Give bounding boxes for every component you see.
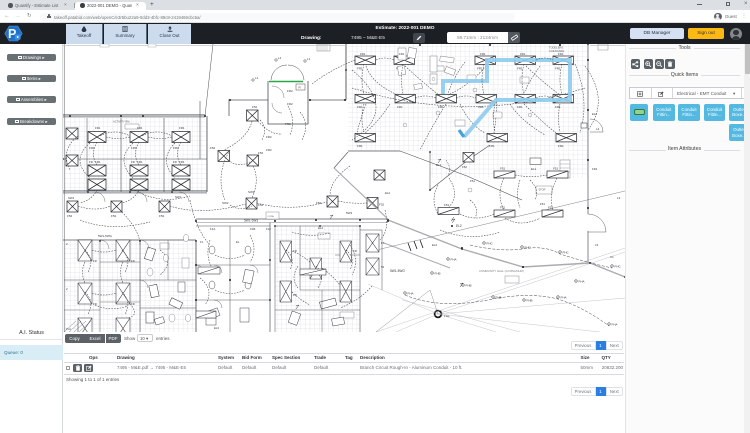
svg-text:FR1: FR1: [137, 160, 143, 164]
svg-text:F52: F52: [210, 146, 216, 150]
svg-text:F51: F51: [540, 202, 545, 206]
svg-text:5W1-5WG: 5W1-5WG: [390, 269, 405, 273]
svg-text:FR1: FR1: [489, 144, 495, 148]
svg-text:SW1: SW1: [175, 195, 182, 199]
svg-text:EL2: EL2: [592, 112, 597, 116]
svg-text:FR1: FR1: [357, 144, 363, 148]
svg-text:F51: F51: [500, 206, 506, 210]
svg-text:SW1: SW1: [68, 196, 75, 200]
svg-text:F51: F51: [500, 167, 506, 171]
svg-text:FR2: FR2: [287, 102, 293, 106]
svg-text:FR1: FR1: [173, 146, 179, 150]
svg-text:FR1: FR1: [558, 144, 564, 148]
svg-text:5W3: 5W3: [346, 211, 353, 215]
svg-text:F51: F51: [553, 167, 559, 171]
svg-text:FHA: FHA: [612, 323, 618, 327]
svg-text:EL2: EL2: [436, 163, 442, 167]
svg-text:L1: L1: [307, 57, 311, 61]
svg-text:C1: C1: [610, 255, 614, 259]
svg-text:FHC: FHC: [525, 246, 532, 250]
svg-text:FHA: FHA: [408, 292, 414, 296]
svg-text:EL1: EL1: [531, 167, 537, 171]
svg-text:5W1-5WG: 5W1-5WG: [98, 234, 113, 238]
svg-text:EL2: EL2: [432, 243, 438, 247]
svg-text:FR1: FR1: [399, 52, 405, 56]
svg-text:FR1: FR1: [558, 52, 564, 56]
svg-text:FR: FR: [131, 259, 135, 263]
svg-text:F52: F52: [258, 203, 264, 207]
svg-text:PLA: PLA: [66, 327, 71, 331]
svg-text:EL: EL: [236, 240, 240, 244]
svg-text:FR1: FR1: [478, 105, 484, 109]
svg-text:FR1: FR1: [137, 126, 143, 130]
svg-text:FR1: FR1: [517, 67, 523, 71]
svg-text:F5: F5: [381, 241, 385, 245]
svg-text:FR: FR: [131, 160, 135, 164]
svg-text:F52: F52: [462, 165, 467, 169]
svg-text:FR1: FR1: [89, 146, 95, 150]
svg-text:L3: L3: [617, 196, 621, 200]
svg-text:FR1: FR1: [480, 52, 486, 56]
svg-text:L4: L4: [596, 127, 600, 131]
svg-text:FHC: FHC: [615, 265, 622, 269]
svg-text:F51: F51: [470, 179, 475, 183]
svg-text:FHC: FHC: [487, 242, 494, 246]
svg-text:FHC: FHC: [563, 251, 570, 255]
svg-text:F52: F52: [252, 105, 258, 109]
svg-text:FR1: FR1: [179, 160, 185, 164]
svg-text:F52: F52: [67, 214, 73, 218]
svg-text:FR1: FR1: [131, 146, 137, 150]
svg-text:F52: F52: [379, 203, 385, 207]
svg-text:F1A: F1A: [210, 227, 215, 231]
svg-text:EL2: EL2: [385, 191, 391, 195]
svg-text:F52: F52: [258, 151, 264, 155]
svg-text:FR1: FR1: [179, 126, 185, 130]
svg-text:FR1: FR1: [95, 160, 101, 164]
svg-text:F52: F52: [316, 201, 322, 205]
svg-text:ACTIVITY RM: ACTIVITY RM: [113, 120, 129, 124]
svg-text:FR: FR: [93, 259, 97, 263]
svg-text:FR1: FR1: [360, 52, 366, 56]
svg-text:FR1: FR1: [555, 105, 561, 109]
svg-text:F1: F1: [200, 240, 204, 244]
svg-text:FHA: FHA: [579, 280, 585, 284]
svg-text:EL2: EL2: [456, 224, 462, 228]
svg-text:FR2: FR2: [266, 148, 272, 152]
svg-text:EL3: EL3: [214, 326, 219, 330]
svg-text:STOR: STOR: [539, 189, 546, 192]
svg-text:FHA: FHA: [561, 296, 567, 300]
svg-text:FR1: FR1: [95, 126, 101, 130]
svg-text:COMMUNITY HALL (GYMNASIUM): COMMUNITY HALL (GYMNASIUM): [479, 269, 524, 273]
svg-text:SW2: SW2: [222, 201, 229, 205]
svg-text:FR1: FR1: [592, 167, 598, 171]
svg-text:FHA: FHA: [451, 258, 457, 262]
svg-text:L1: L1: [255, 76, 259, 80]
svg-text:5W1-5W3: 5W1-5W3: [244, 219, 258, 223]
svg-text:F52: F52: [159, 214, 165, 218]
svg-text:FHB: FHB: [435, 272, 441, 276]
svg-text:FR2: FR2: [287, 89, 293, 93]
svg-text:FR1: FR1: [517, 105, 523, 109]
svg-text:FR1: FR1: [477, 67, 483, 71]
svg-text:COPA: COPA: [268, 215, 275, 218]
svg-text:FR1: FR1: [397, 105, 403, 109]
svg-text:FL2: FL2: [266, 227, 271, 231]
svg-text:F52: F52: [111, 214, 117, 218]
svg-text:FR: FR: [89, 160, 93, 164]
svg-text:53: 53: [381, 265, 385, 269]
svg-text:FR: FR: [173, 160, 177, 164]
svg-text:SW1: SW1: [248, 190, 255, 194]
svg-text:F51: F51: [444, 203, 450, 207]
svg-text:FR2: FR2: [285, 122, 291, 126]
svg-text:FR1: FR1: [520, 52, 526, 56]
svg-text:L5: L5: [595, 243, 599, 247]
svg-text:FR2: FR2: [266, 135, 272, 139]
svg-text:FHB: FHB: [527, 299, 533, 303]
svg-text:L1: L1: [278, 56, 282, 60]
svg-text:FR1: FR1: [555, 67, 561, 71]
svg-text:FR: FR: [131, 302, 135, 306]
svg-text:FR1: FR1: [357, 67, 363, 71]
svg-text:F1B: F1B: [250, 227, 255, 231]
svg-text:FHB: FHB: [466, 284, 472, 288]
svg-text:FR1: FR1: [357, 105, 363, 109]
